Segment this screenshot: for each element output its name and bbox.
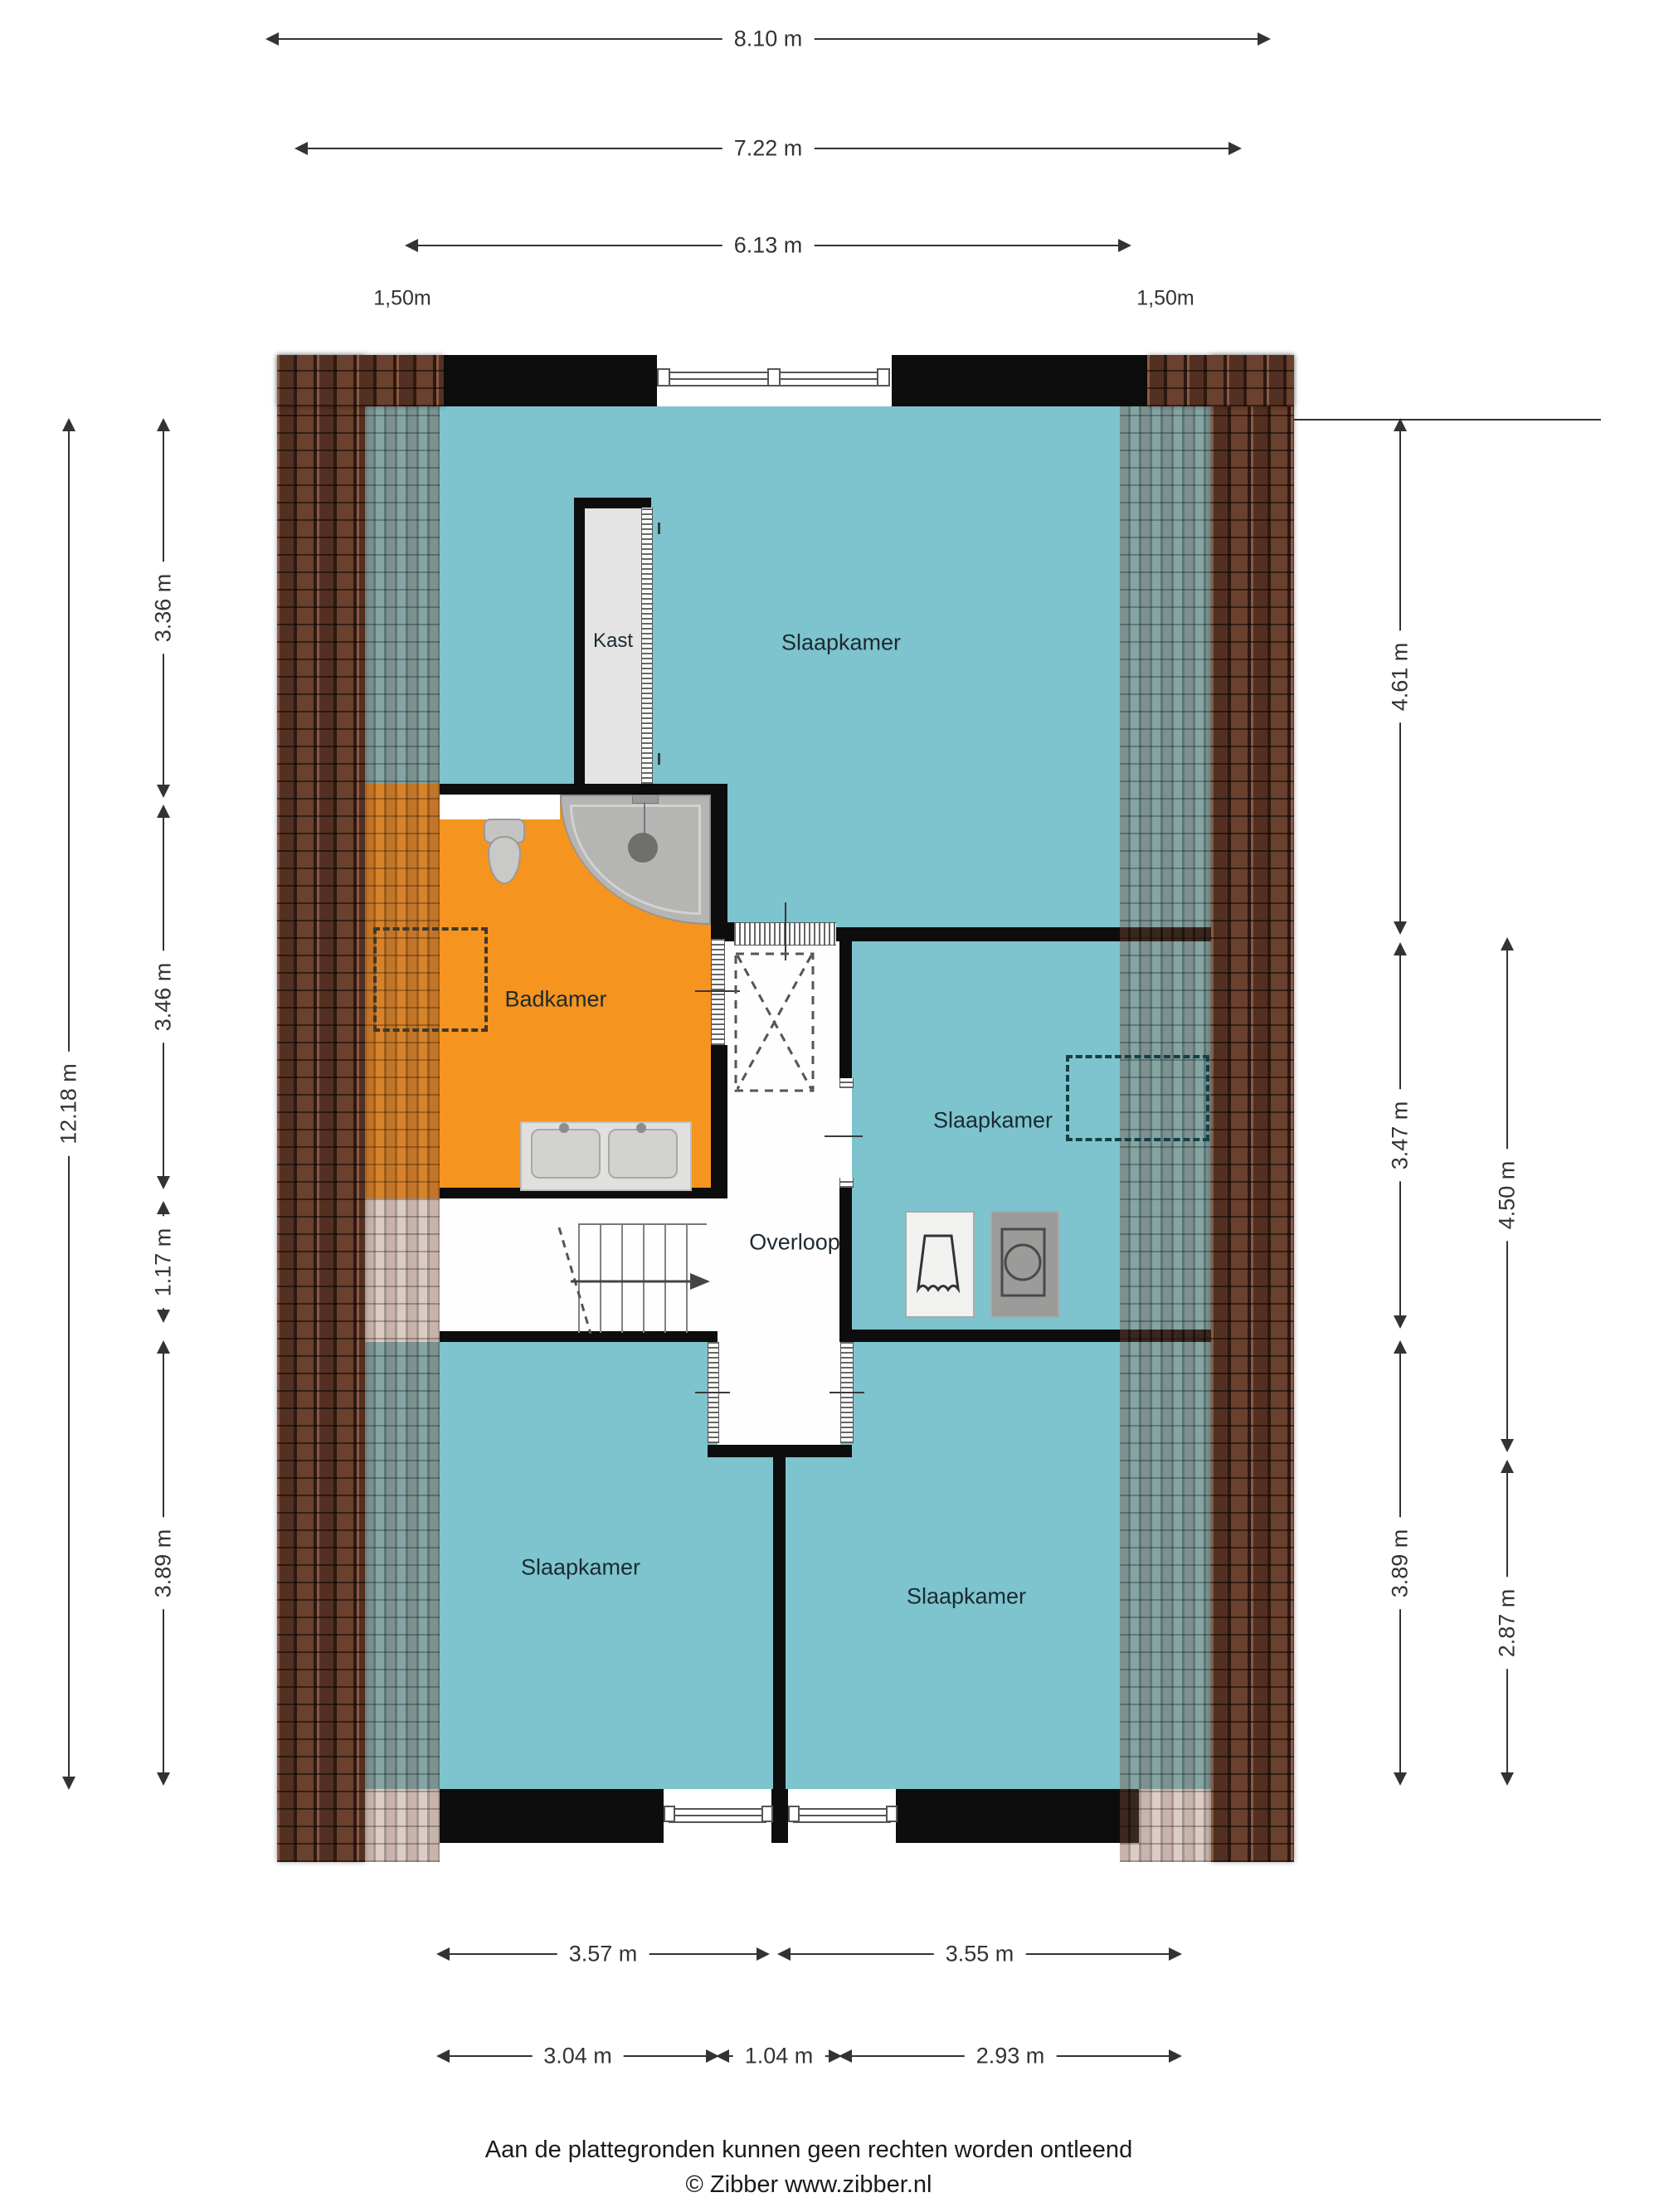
label-slaapkamer-bottom-left: Slaapkamer bbox=[521, 1555, 640, 1581]
badkamer-door-tick bbox=[695, 990, 740, 992]
void-x-icon bbox=[734, 952, 815, 1092]
slaapkamer-br-door-tick bbox=[829, 1392, 864, 1393]
window-top-mullion-center bbox=[767, 368, 781, 386]
window-top-mullion-left bbox=[657, 368, 670, 386]
window-top-mullion-right bbox=[877, 368, 890, 386]
shower-hose bbox=[644, 802, 645, 834]
dim-eaves-right: 1,50m bbox=[1136, 287, 1194, 311]
kast-door bbox=[641, 508, 653, 784]
room-overloop-lower bbox=[718, 1342, 840, 1445]
dim-left-117-value: 1.17 m bbox=[151, 1216, 177, 1308]
wall-kast-top bbox=[574, 498, 651, 508]
label-kast: Kast bbox=[593, 630, 633, 653]
slaapkamer-right-door-gap bbox=[839, 1088, 852, 1178]
footer-disclaimer: Aan de plattegronden kunnen geen rechten… bbox=[485, 2137, 1132, 2164]
window-bottom-right-glazing bbox=[793, 1808, 891, 1823]
wall-bottom-divider bbox=[773, 1457, 786, 1789]
stairwell-void bbox=[734, 952, 815, 1092]
label-slaapkamer-right: Slaapkamer bbox=[933, 1108, 1053, 1134]
dim-right-347-value: 3.47 m bbox=[1388, 1090, 1413, 1182]
dim-bottom-104-value: 1.04 m bbox=[733, 2044, 825, 2069]
laundry-basket-icon bbox=[907, 1213, 970, 1313]
badkamer-wall-ledge bbox=[440, 795, 560, 819]
sink-basin-right bbox=[608, 1129, 678, 1179]
label-slaapkamer-bottom-right: Slaapkamer bbox=[907, 1584, 1026, 1610]
washing-machine-icon bbox=[992, 1213, 1054, 1313]
dim-left-1218-value: 12.18 m bbox=[56, 1052, 82, 1156]
wall-badkamer-right-lower bbox=[711, 1045, 727, 1198]
roof-edge-right bbox=[1211, 355, 1294, 1862]
skylight-dashed-icon-slaapkamer-right bbox=[1066, 1055, 1209, 1141]
roof-overlay-left bbox=[365, 406, 440, 1862]
roof-edge-top-right bbox=[1147, 355, 1294, 406]
dim-left-389-value: 3.89 m bbox=[151, 1517, 177, 1609]
slaapkamer-right-door-jamb-bottom bbox=[839, 1178, 854, 1188]
floorplan-page: Slaapkamer Kast Badkamer Overloop Slaapk… bbox=[0, 0, 1659, 2212]
label-slaapkamer-top: Slaapkamer bbox=[781, 630, 901, 656]
roof-edge-top-left bbox=[277, 355, 444, 406]
wall-overloop-right-upper bbox=[839, 941, 852, 1078]
dim-right-287-value: 2.87 m bbox=[1495, 1577, 1520, 1669]
dim-left-346-value: 3.46 m bbox=[151, 951, 177, 1043]
dim-top-613-value: 6.13 m bbox=[722, 233, 815, 259]
dim-top-722-value: 7.22 m bbox=[722, 136, 815, 162]
shower-head-icon bbox=[632, 795, 659, 804]
window-bottom-right-mullion-a bbox=[788, 1806, 800, 1822]
footer-credit: © Zibber www.zibber.nl bbox=[686, 2171, 932, 2199]
label-overloop: Overloop bbox=[749, 1230, 840, 1256]
dim-right-461-value: 4.61 m bbox=[1388, 630, 1413, 722]
kast-door-tick-top bbox=[658, 523, 660, 534]
wall-overloop-right-lower bbox=[839, 1188, 852, 1342]
skylight-dashed-icon-badkamer bbox=[373, 927, 488, 1032]
wall-kast-left bbox=[574, 498, 585, 795]
window-bottom-left-glazing bbox=[669, 1808, 766, 1823]
dim-right-389-value: 3.89 m bbox=[1388, 1517, 1413, 1609]
window-bottom-right-mullion-b bbox=[886, 1806, 898, 1822]
sink-faucet-right bbox=[636, 1123, 646, 1133]
wall-top-left bbox=[444, 355, 657, 406]
kast-door-tick-bottom bbox=[658, 753, 660, 765]
badkamer-door bbox=[711, 939, 725, 1045]
slaapkamer-right-door-jamb-top bbox=[839, 1078, 854, 1088]
wall-overloop-column-bottom bbox=[708, 1445, 852, 1457]
shower-drain-icon bbox=[628, 833, 658, 863]
dim-bottom-355-value: 3.55 m bbox=[934, 1942, 1026, 1967]
dim-left-336-value: 3.36 m bbox=[151, 562, 177, 654]
label-badkamer: Badkamer bbox=[504, 987, 606, 1013]
wall-badkamer-top bbox=[440, 784, 727, 795]
roof-edge-left bbox=[277, 355, 365, 1862]
dim-bottom-357-value: 3.57 m bbox=[557, 1942, 649, 1967]
stairs-flight bbox=[547, 1219, 713, 1335]
sink-faucet-left bbox=[559, 1123, 569, 1133]
wall-badkamer-right-upper bbox=[711, 795, 727, 939]
window-bottom-left-mullion-a bbox=[664, 1806, 675, 1822]
dim-eaves-left: 1,50m bbox=[373, 287, 431, 311]
washing-machine-appliance bbox=[990, 1211, 1059, 1318]
laundry-basket-appliance bbox=[905, 1211, 975, 1318]
sink-basin-left bbox=[531, 1129, 601, 1179]
slaapkamer-right-door-tick bbox=[825, 1135, 863, 1137]
dim-right-450-value: 4.50 m bbox=[1495, 1149, 1520, 1241]
dim-top-810-value: 8.10 m bbox=[722, 27, 815, 52]
stairs-up-arrow-icon bbox=[547, 1219, 713, 1335]
dim-bottom-304-value: 3.04 m bbox=[532, 2044, 624, 2069]
reference-line-right bbox=[1294, 419, 1601, 421]
wall-top-right bbox=[892, 355, 1147, 406]
slaapkamer-bl-door-tick bbox=[695, 1392, 730, 1393]
dim-bottom-293-value: 2.93 m bbox=[965, 2044, 1057, 2069]
window-bottom-left-mullion-b bbox=[761, 1806, 773, 1822]
